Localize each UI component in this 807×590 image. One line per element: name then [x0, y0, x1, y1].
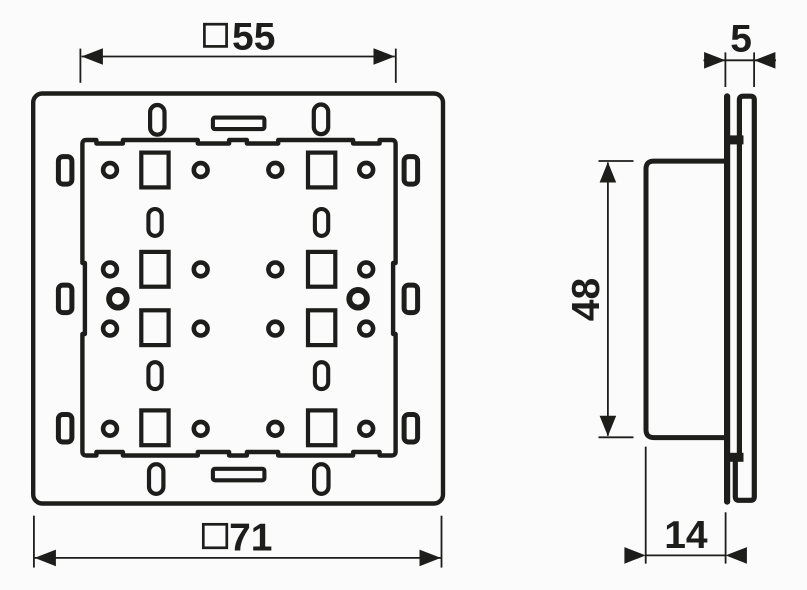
svg-text:5: 5: [730, 18, 752, 61]
svg-text:48: 48: [565, 278, 608, 321]
svg-text:71: 71: [229, 516, 272, 559]
svg-text:55: 55: [232, 15, 275, 58]
svg-text:14: 14: [664, 514, 708, 557]
